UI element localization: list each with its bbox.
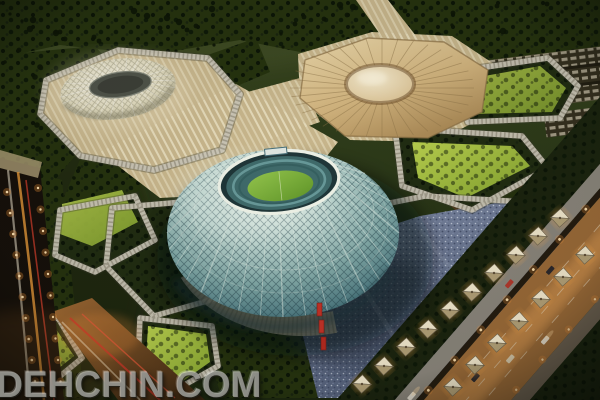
scene-canvas bbox=[0, 0, 600, 400]
aerial-rendering: IDEHCHIN.COM bbox=[0, 0, 600, 400]
vignette bbox=[0, 0, 600, 400]
watermark: IDEHCHIN.COM bbox=[0, 364, 261, 400]
